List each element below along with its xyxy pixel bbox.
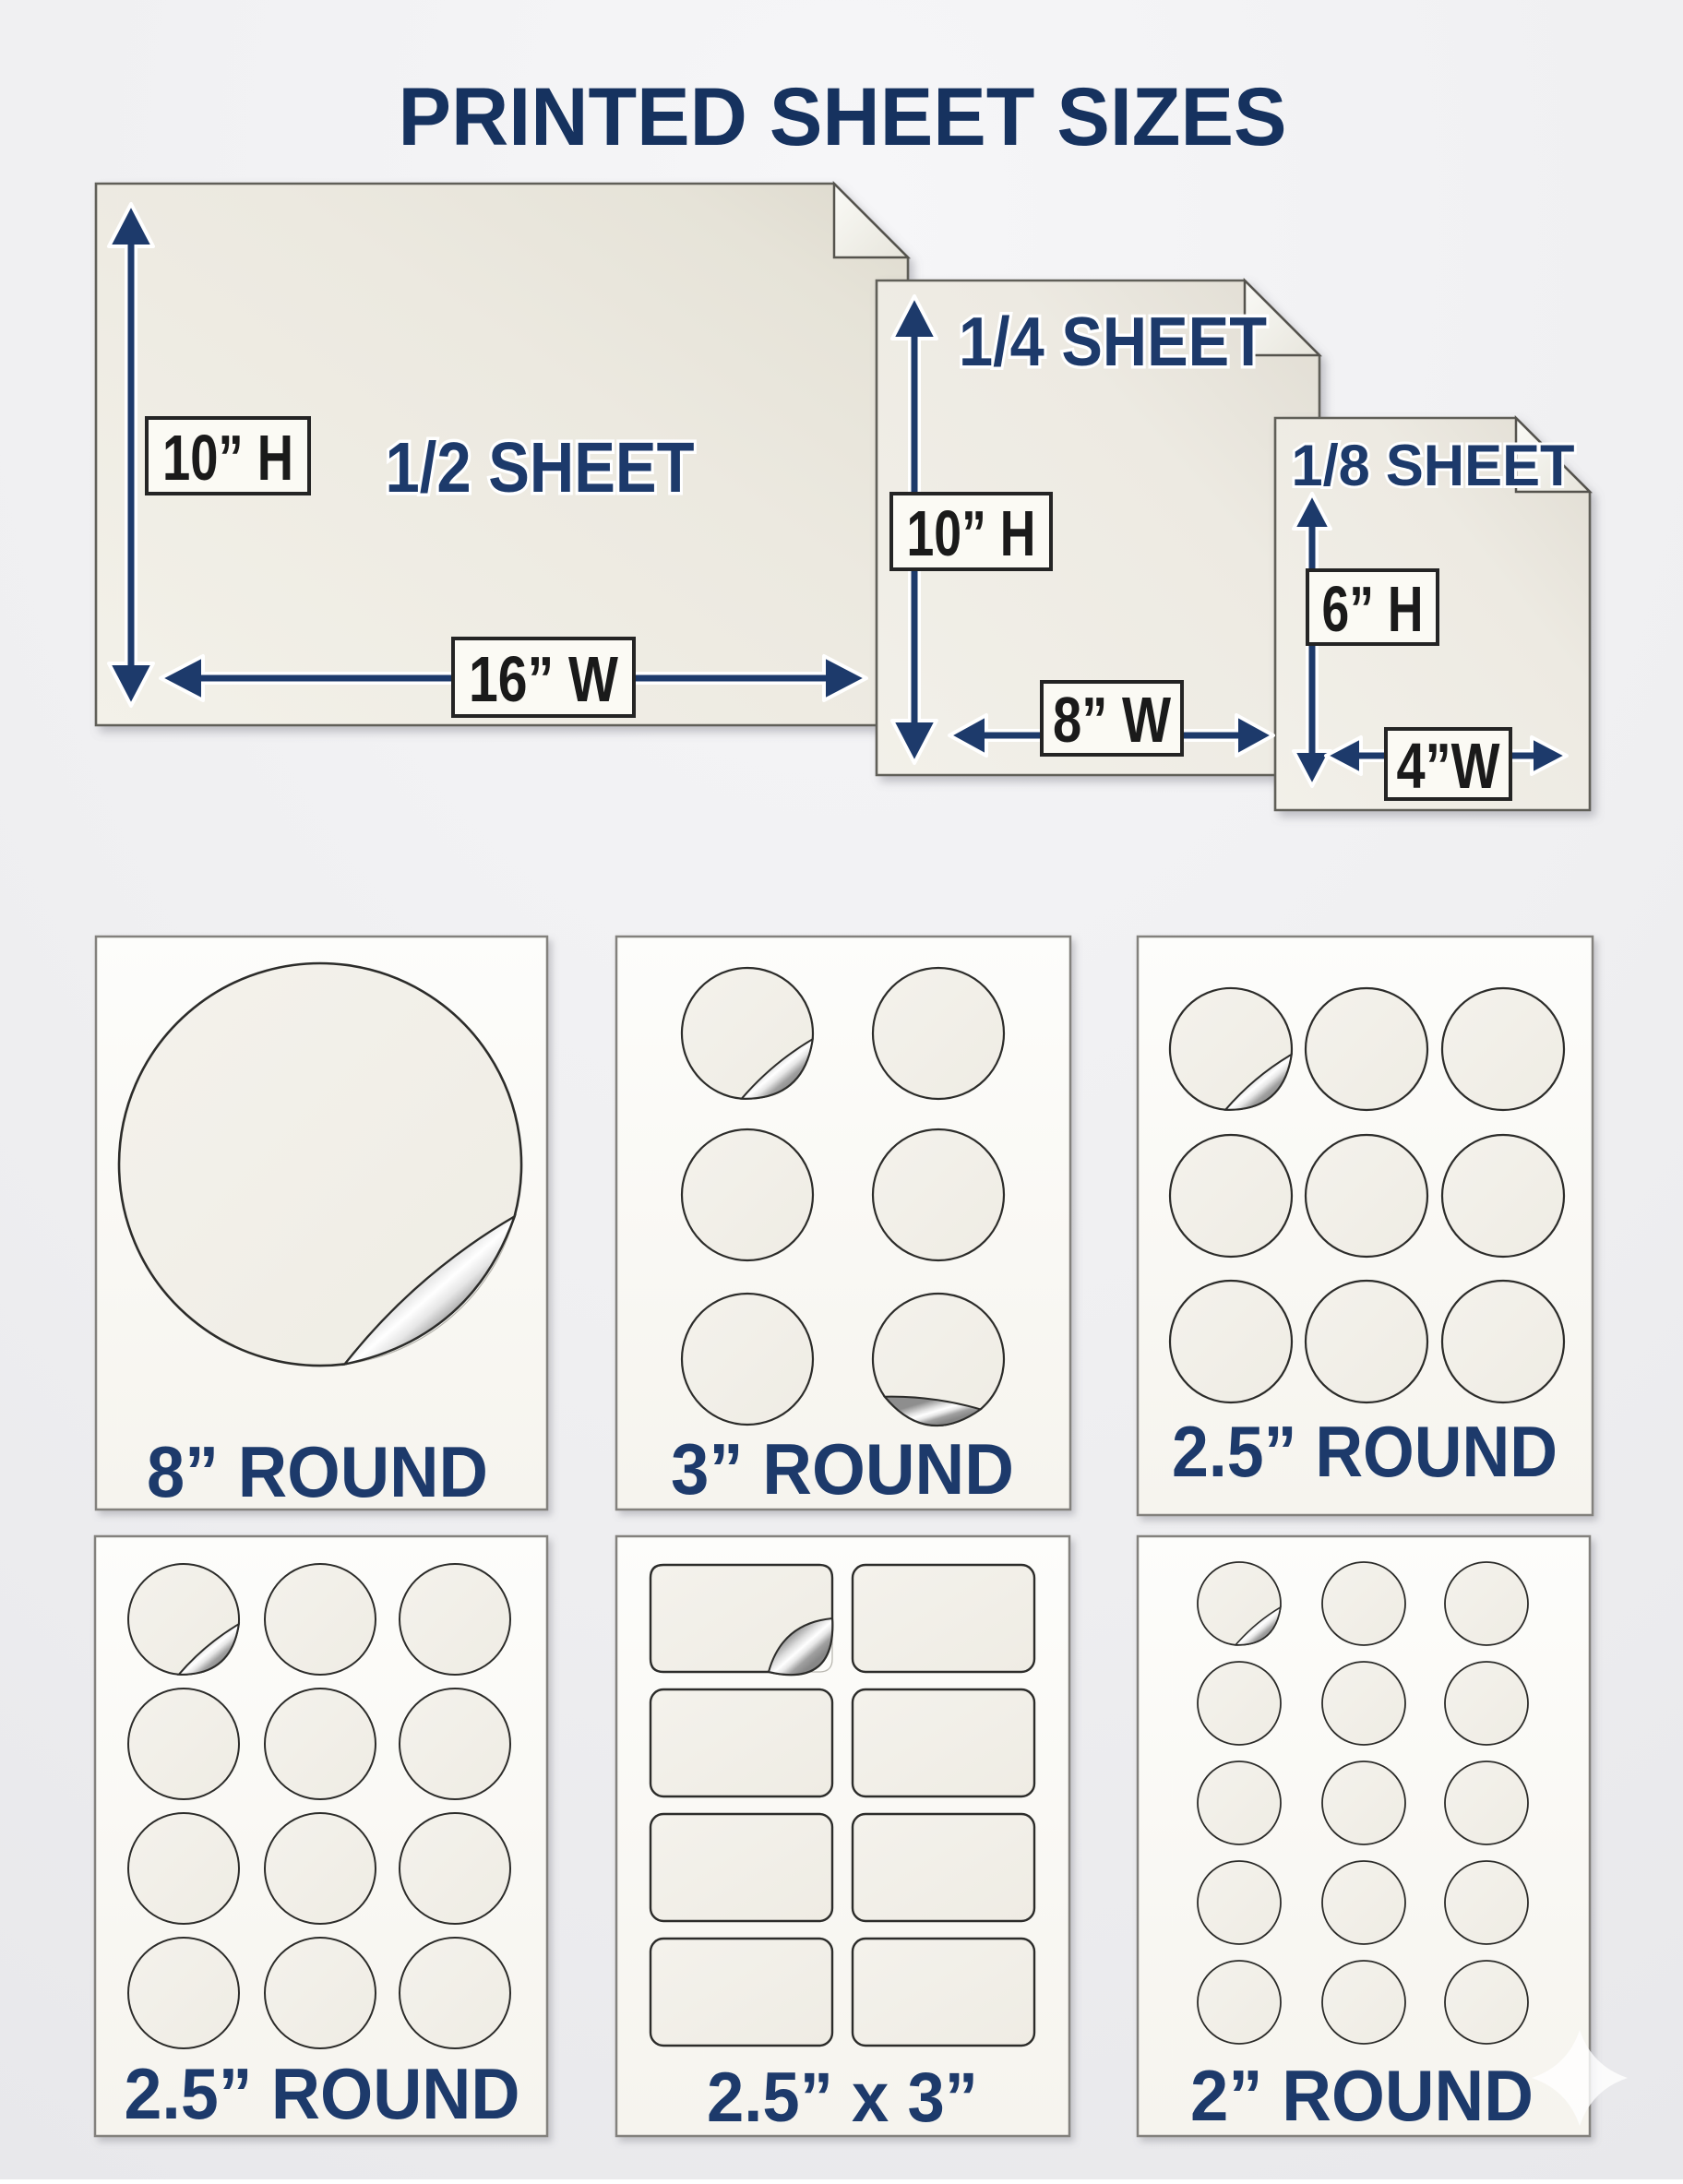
svg-text:1/8 SHEET: 1/8 SHEET bbox=[1292, 434, 1575, 498]
svg-text:6” H: 6” H bbox=[1322, 573, 1424, 645]
svg-text:2.5” x 3”: 2.5” x 3” bbox=[707, 2059, 978, 2137]
svg-text:4”W: 4”W bbox=[1397, 730, 1500, 802]
svg-text:10” H: 10” H bbox=[162, 422, 293, 494]
svg-text:1/4 SHEET: 1/4 SHEET bbox=[959, 303, 1267, 380]
svg-text:2.5” ROUND: 2.5” ROUND bbox=[1172, 1411, 1558, 1492]
svg-text:8” W: 8” W bbox=[1053, 684, 1171, 756]
svg-text:10” H: 10” H bbox=[907, 497, 1036, 569]
svg-text:2.5” ROUND: 2.5” ROUND bbox=[125, 2053, 520, 2134]
svg-text:16” W: 16” W bbox=[469, 643, 618, 715]
svg-text:8” ROUND: 8” ROUND bbox=[147, 1431, 488, 1512]
svg-text:1/2 SHEET: 1/2 SHEET bbox=[386, 428, 695, 507]
svg-text:PRINTED SHEET SIZES: PRINTED SHEET SIZES bbox=[399, 70, 1287, 162]
svg-text:2” ROUND: 2” ROUND bbox=[1190, 2055, 1534, 2136]
svg-text:3” ROUND: 3” ROUND bbox=[671, 1428, 1014, 1510]
